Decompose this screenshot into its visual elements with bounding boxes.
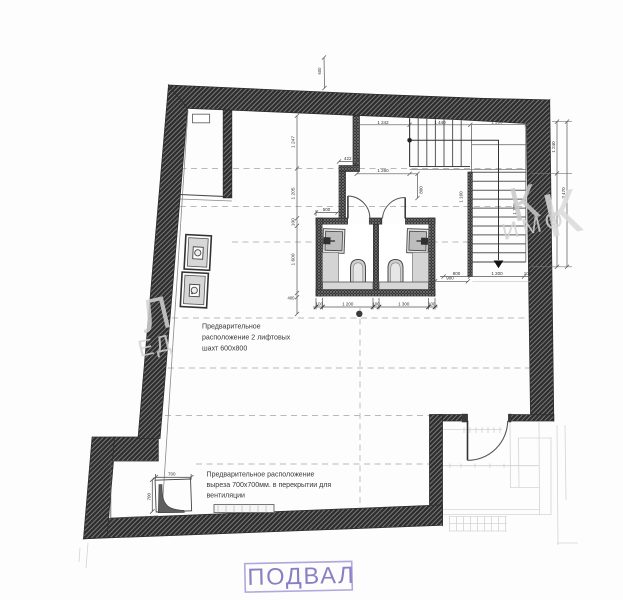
svg-text:1 600: 1 600 <box>291 253 297 265</box>
svg-text:1 260: 1 260 <box>377 168 389 173</box>
svg-text:1 200: 1 200 <box>342 302 354 307</box>
svg-text:100: 100 <box>315 302 323 307</box>
svg-text:1 240: 1 240 <box>551 141 556 153</box>
svg-text:ПОДВАЛ: ПОДВАЛ <box>247 562 355 590</box>
svg-text:800: 800 <box>419 186 424 194</box>
svg-text:422: 422 <box>344 156 352 161</box>
svg-text:700: 700 <box>168 472 176 477</box>
svg-text:Предварительное расположение: Предварительное расположение <box>207 472 315 479</box>
svg-text:100: 100 <box>291 218 297 226</box>
svg-text:1 300: 1 300 <box>398 302 410 307</box>
svg-text:расположение 2 лифтовых: расположение 2 лифтовых <box>202 335 291 342</box>
svg-text:800: 800 <box>453 271 461 276</box>
svg-text:1 200: 1 200 <box>491 120 503 125</box>
svg-text:1 205: 1 205 <box>291 187 297 199</box>
svg-text:400: 400 <box>288 296 296 301</box>
svg-text:1 160: 1 160 <box>459 191 464 203</box>
svg-text:шахт 600х800: шахт 600х800 <box>202 346 247 353</box>
svg-text:выреза 700х700мм. в перекрытии: выреза 700х700мм. в перекрытии для <box>207 482 332 489</box>
svg-text:100: 100 <box>428 302 436 307</box>
svg-text:1 200: 1 200 <box>491 271 503 276</box>
svg-text:1 247: 1 247 <box>291 136 297 148</box>
svg-text:1 440: 1 440 <box>434 120 446 125</box>
svg-text:600: 600 <box>317 67 322 75</box>
svg-text:700: 700 <box>147 492 152 500</box>
svg-text:Предварительное: Предварительное <box>202 324 261 331</box>
svg-text:500: 500 <box>323 207 331 212</box>
svg-text:100: 100 <box>524 271 532 276</box>
svg-text:вентиляции: вентиляции <box>207 493 246 500</box>
svg-text:1 242: 1 242 <box>377 120 389 125</box>
svg-text:100: 100 <box>372 302 380 307</box>
